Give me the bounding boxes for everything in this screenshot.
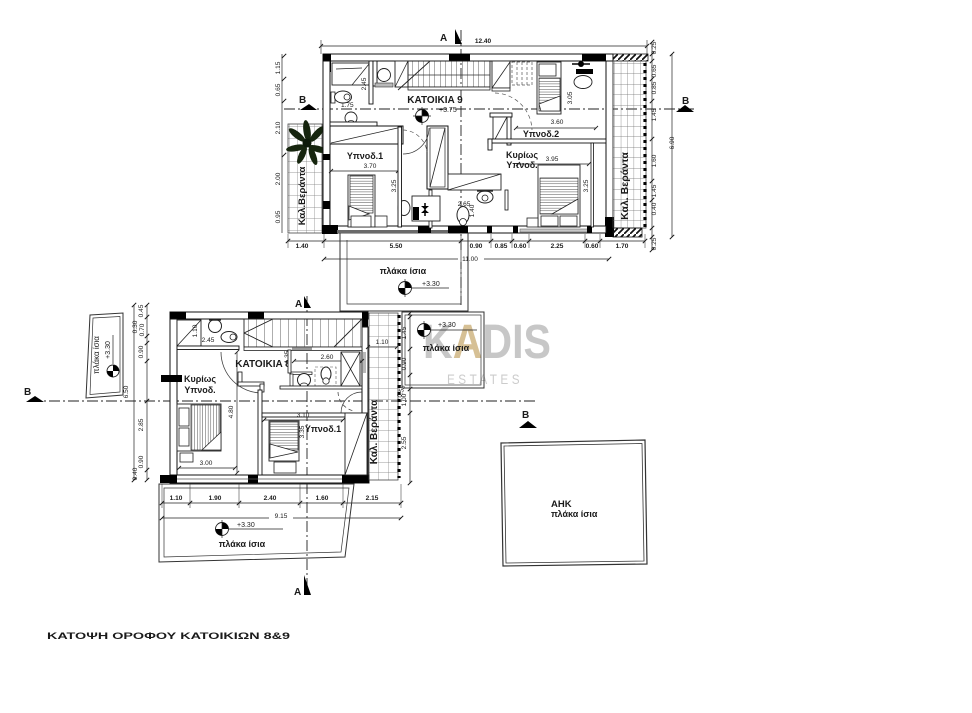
- svg-text:1.10: 1.10: [170, 495, 183, 502]
- svg-text:3.35: 3.35: [299, 425, 306, 438]
- svg-text:2.55: 2.55: [401, 436, 408, 449]
- svg-text:2.40: 2.40: [264, 495, 277, 502]
- svg-text:Καλ. Βεράντα: Καλ. Βεράντα: [619, 152, 631, 220]
- svg-text:6.90: 6.90: [669, 136, 676, 149]
- svg-text:2.00: 2.00: [275, 172, 282, 185]
- svg-text:11.00: 11.00: [462, 256, 478, 263]
- svg-text:1.40: 1.40: [469, 204, 476, 217]
- svg-text:3.70: 3.70: [364, 163, 377, 170]
- svg-text:Καλ. Βεράντα: Καλ. Βεράντα: [369, 399, 380, 464]
- svg-text:Υπνοδ.2: Υπνοδ.2: [523, 129, 559, 139]
- svg-text:+3.75: +3.75: [439, 107, 457, 114]
- svg-text:12.40: 12.40: [475, 38, 492, 45]
- svg-text:1.60: 1.60: [316, 495, 329, 502]
- svg-text:+3.30: +3.30: [422, 281, 440, 288]
- svg-text:3.00: 3.00: [200, 460, 213, 467]
- svg-text:Κυρίως: Κυρίως: [184, 374, 216, 384]
- svg-text:0.25: 0.25: [651, 41, 658, 54]
- svg-text:0.90: 0.90: [470, 243, 483, 250]
- svg-text:+3.30: +3.30: [438, 322, 456, 329]
- svg-text:1.10: 1.10: [376, 339, 389, 346]
- svg-text:B: B: [522, 410, 529, 421]
- svg-text:Υπνοδ.1: Υπνοδ.1: [347, 151, 383, 161]
- svg-text:0.90: 0.90: [138, 345, 145, 358]
- svg-text:1.90: 1.90: [209, 495, 222, 502]
- svg-text:0.40: 0.40: [651, 202, 658, 215]
- svg-text:2.45: 2.45: [361, 77, 368, 90]
- svg-text:KATOIKIA 9: KATOIKIA 9: [407, 95, 463, 106]
- svg-text:+3.30: +3.30: [237, 522, 255, 529]
- svg-text:+3.30: +3.30: [105, 341, 112, 359]
- svg-text:1.45: 1.45: [651, 108, 658, 121]
- svg-text:A: A: [440, 33, 447, 44]
- svg-text:KATOIKIA 8: KATOIKIA 8: [235, 359, 291, 370]
- svg-text:B: B: [299, 95, 306, 106]
- svg-text:πλάκα ίσια: πλάκα ίσια: [551, 509, 598, 519]
- svg-text:0.45: 0.45: [138, 304, 145, 317]
- svg-text:6.50: 6.50: [123, 385, 130, 398]
- svg-text:B: B: [24, 387, 31, 398]
- svg-text:0.70: 0.70: [139, 323, 146, 336]
- svg-text:4.80: 4.80: [228, 405, 235, 418]
- svg-text:Υπνοδ.1: Υπνοδ.1: [305, 424, 341, 434]
- svg-text:Καλ.Βεράντα: Καλ.Βεράντα: [297, 167, 308, 226]
- svg-text:2.15: 2.15: [366, 495, 379, 502]
- svg-text:1.60: 1.60: [651, 154, 658, 167]
- svg-text:B: B: [682, 96, 689, 107]
- svg-text:A: A: [294, 587, 301, 598]
- svg-text:3.05: 3.05: [567, 91, 574, 104]
- svg-text:2.85: 2.85: [138, 418, 145, 431]
- svg-text:3.60: 3.60: [551, 119, 564, 126]
- svg-text:3.25: 3.25: [391, 179, 398, 192]
- svg-text:Υπνοδ.: Υπνοδ.: [506, 160, 537, 170]
- svg-text:2.60: 2.60: [321, 354, 334, 361]
- svg-text:0.90: 0.90: [138, 455, 145, 468]
- svg-text:A: A: [295, 299, 302, 310]
- svg-text:0.30: 0.30: [132, 320, 139, 333]
- svg-text:0.95: 0.95: [275, 210, 282, 223]
- svg-text:1.45: 1.45: [651, 184, 658, 197]
- svg-text:0.60: 0.60: [514, 243, 527, 250]
- svg-text:ΚΑΤΟΨΗ ΟΡΟΦΟΥ ΚΑΤΟΙΚΙΩΝ 8&9: ΚΑΤΟΨΗ ΟΡΟΦΟΥ ΚΑΤΟΙΚΙΩΝ 8&9: [47, 631, 290, 641]
- svg-text:0.40: 0.40: [132, 467, 139, 480]
- svg-text:πλάκα ίσια: πλάκα ίσια: [380, 266, 427, 276]
- svg-text:πλάκα ίσια: πλάκα ίσια: [219, 539, 266, 549]
- svg-text:1.40: 1.40: [296, 243, 309, 250]
- svg-text:1.70: 1.70: [616, 243, 629, 250]
- svg-text:3.25: 3.25: [583, 179, 590, 192]
- svg-text:πλάκα ίσια: πλάκα ίσια: [92, 336, 101, 374]
- svg-text:1.15: 1.15: [275, 61, 282, 74]
- svg-text:Υπνοδ.: Υπνοδ.: [184, 385, 215, 395]
- svg-text:5.50: 5.50: [390, 243, 403, 250]
- svg-text:1.75: 1.75: [341, 102, 354, 109]
- svg-text:3.95: 3.95: [546, 156, 559, 163]
- svg-text:2.45: 2.45: [202, 337, 215, 344]
- svg-text:Κυρίως: Κυρίως: [506, 150, 538, 160]
- svg-text:0.25: 0.25: [651, 237, 658, 250]
- svg-text:πλάκα ίσια: πλάκα ίσια: [423, 343, 470, 353]
- svg-text:2.25: 2.25: [551, 243, 564, 250]
- svg-text:0.85: 0.85: [651, 81, 658, 94]
- svg-text:0.65: 0.65: [651, 64, 658, 77]
- svg-text:1.10: 1.10: [192, 324, 199, 337]
- svg-text:0.85: 0.85: [495, 243, 508, 250]
- svg-text:2.10: 2.10: [275, 121, 282, 134]
- svg-text:3.10: 3.10: [297, 412, 310, 419]
- svg-text:0.65: 0.65: [275, 83, 282, 96]
- svg-text:0.60: 0.60: [586, 243, 599, 250]
- svg-text:9.15: 9.15: [275, 513, 288, 520]
